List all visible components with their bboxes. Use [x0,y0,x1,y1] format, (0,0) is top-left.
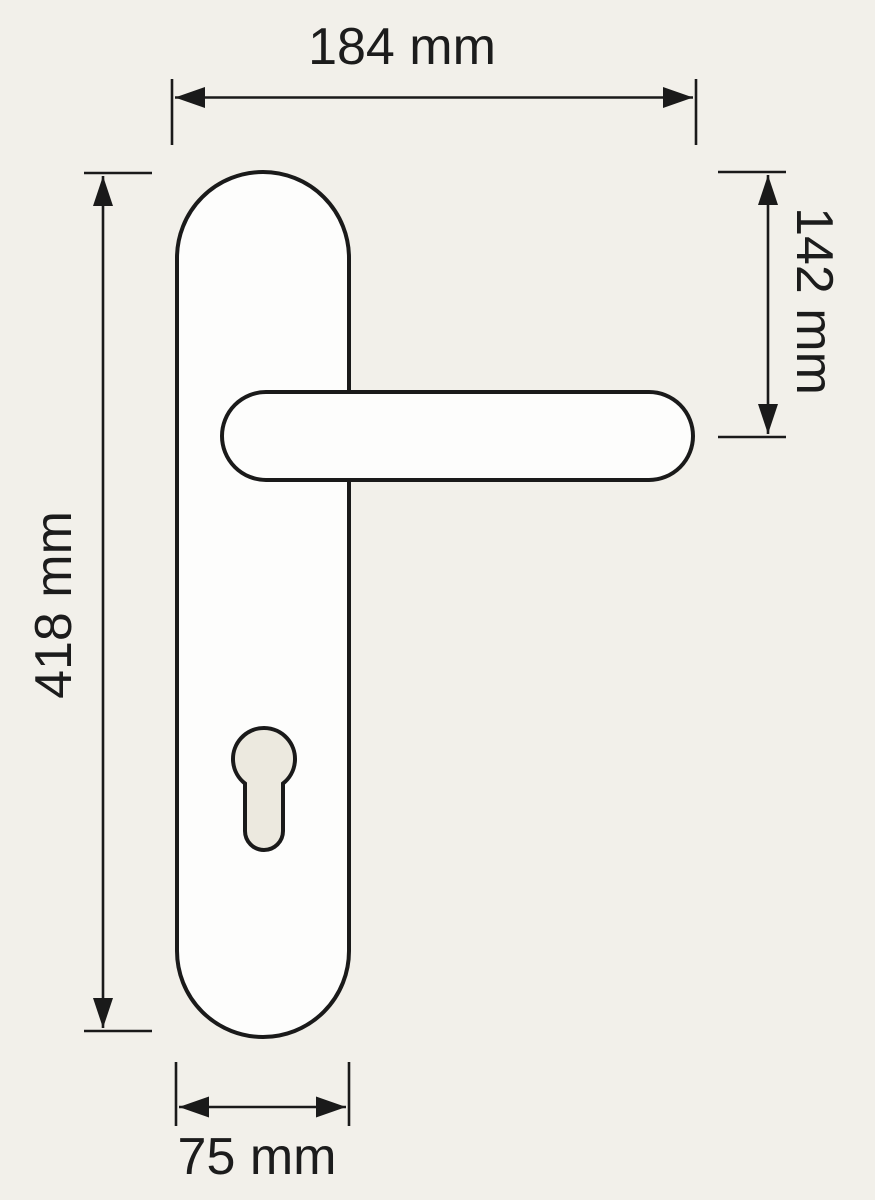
dimension-drawing-canvas: 184 mm 142 mm 418 mm 75 mm [0,0,875,1200]
backplate-outline [177,172,349,1037]
arrowhead-left-icon [179,1097,209,1118]
dimension-bottom-width [176,1062,349,1126]
arrowhead-up-icon [758,175,778,205]
arrowhead-up-icon [93,176,113,206]
arrowhead-left-icon [175,87,205,108]
dimension-label-top-width: 184 mm [308,21,496,73]
dimension-label-right-height: 142 mm [788,207,840,395]
door-handle-drawing [0,0,875,1200]
dimension-right-height [718,172,786,437]
arrowhead-down-icon [758,404,778,434]
dimension-left-height [84,173,152,1031]
dimension-label-left-height: 418 mm [28,511,80,699]
arrowhead-right-icon [316,1097,346,1118]
dimension-label-bottom-width: 75 mm [178,1131,337,1183]
arrowhead-right-icon [663,87,693,108]
dimension-top-width [172,79,696,145]
lever-handle-outline [222,392,693,480]
arrowhead-down-icon [93,998,113,1028]
